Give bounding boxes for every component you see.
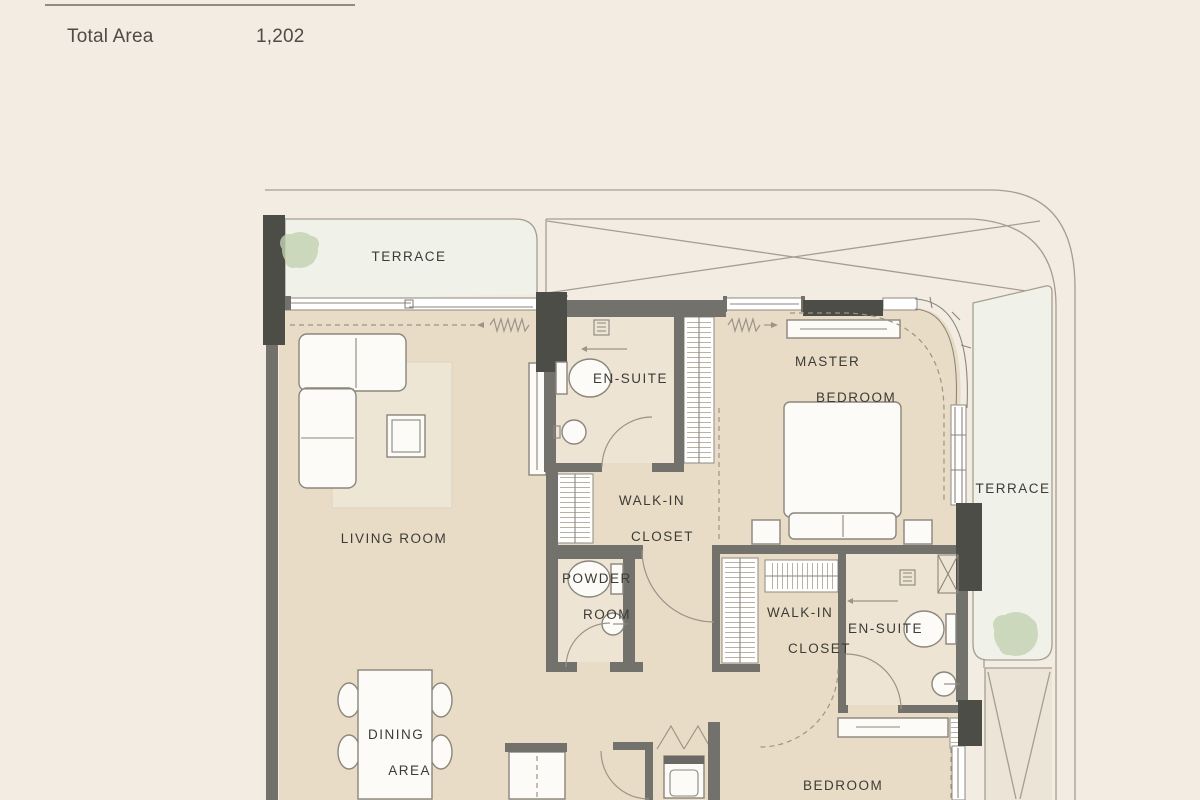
walk-in-closet-2-label: WALK-IN CLOSET <box>767 604 851 658</box>
ensuite-1-label: EN-SUITE <box>593 370 668 388</box>
bed <box>784 402 901 517</box>
bedroom-label: BEDROOM <box>803 777 883 795</box>
toilet-icon <box>556 362 567 394</box>
tree-icon <box>280 232 319 268</box>
terrace-right-area <box>973 286 1052 660</box>
window <box>883 298 917 310</box>
toilet-icon <box>946 614 956 644</box>
bedroom-furniture <box>838 718 948 737</box>
tree-icon <box>993 612 1038 656</box>
nightstand <box>904 520 932 544</box>
nightstand <box>752 520 780 544</box>
window <box>951 405 966 505</box>
terrace-left-label: TERRACE <box>371 248 446 266</box>
dining-chair <box>430 683 452 717</box>
floor-plan-page: Total Area 1,202 <box>0 0 1200 800</box>
dining-chair <box>338 683 360 717</box>
terrace-right-label: TERRACE <box>975 480 1050 498</box>
dining-chair <box>430 735 452 769</box>
walk-in-closet-1-label: WALK-IN CLOSET <box>610 492 694 546</box>
powder-room-label: POWDER ROOM <box>562 570 632 624</box>
floor-plan <box>0 0 1200 800</box>
living-room-label: LIVING ROOM <box>341 530 448 548</box>
dining-chair <box>338 735 360 769</box>
coffee-table <box>387 415 425 457</box>
master-bedroom-label: MASTER BEDROOM <box>795 353 896 407</box>
sofa <box>299 334 406 391</box>
dining-area-label: DINING AREA <box>368 726 431 780</box>
ensuite-2-label: EN-SUITE <box>848 620 923 638</box>
